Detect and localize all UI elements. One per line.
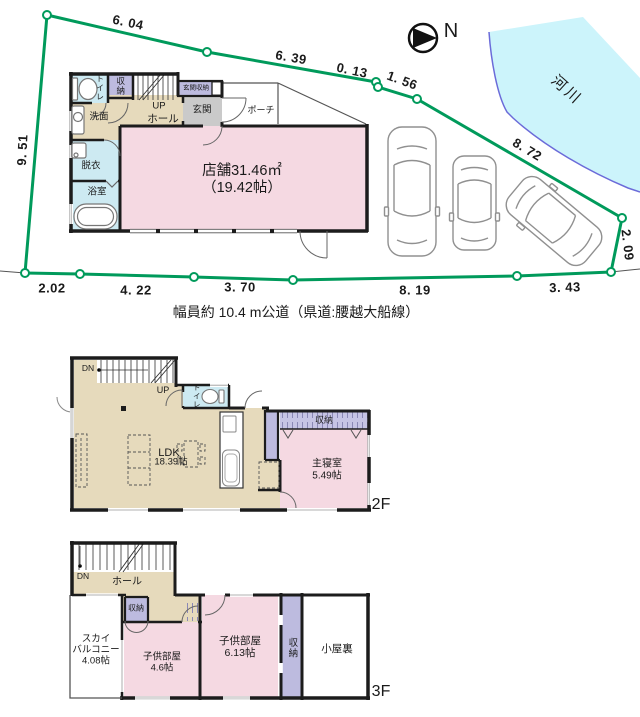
label-bedroom-size-2f: 5.49帖 <box>312 470 341 481</box>
measure-bottom-5: 3. 43 <box>549 280 581 296</box>
measure-bottom-3: 3. 70 <box>224 281 255 296</box>
label-kids2-3f: 子供部屋 <box>219 636 261 648</box>
road-edge-line <box>0 269 640 273</box>
label-washroom-1f: 洗面 <box>89 113 108 124</box>
floor-2-plan <box>57 357 371 512</box>
north-arrow-icon <box>409 24 437 52</box>
label-ldk-size-2f: 18.39帖 <box>154 458 187 469</box>
floor-label-2f: 2F <box>372 496 391 514</box>
label-balcony-size-3f: 4.08帖 <box>82 657 110 668</box>
label-dn-3f: DN <box>77 572 89 582</box>
label-up-1f: UP <box>152 102 165 113</box>
measure-bottom-1: 2.02 <box>38 282 65 297</box>
floor-label-3f: 3F <box>372 683 391 701</box>
label-shop-area: 店舗31.46㎡ <box>202 163 282 179</box>
label-hall-3f: ホール <box>112 576 142 587</box>
floor-3-plan <box>70 541 370 700</box>
car-2-icon <box>450 156 500 250</box>
label-toilet-2f: トイレ <box>192 383 200 409</box>
porch-outline <box>222 83 366 124</box>
label-entrance-1f: 玄関 <box>192 106 211 117</box>
floorplan-drawing <box>0 0 640 717</box>
measure-bottom-2: 4. 22 <box>120 284 151 299</box>
label-closet-tall-3f: 収納 <box>286 638 297 659</box>
label-up-2f: UP <box>157 385 170 395</box>
label-attic-3f: 小屋裏 <box>321 644 353 656</box>
label-porch-1f: ポーチ <box>247 105 274 115</box>
north-label: N <box>444 20 458 42</box>
label-entrance-closet-1f: 玄関収納 <box>183 84 209 91</box>
measure-bottom-4: 8. 19 <box>399 284 430 299</box>
label-hall-1f: ホール <box>147 114 179 126</box>
toilet-fixture-2f <box>202 390 224 404</box>
measure-east: 2. 09 <box>618 229 636 262</box>
label-kids2-size-3f: 6.13帖 <box>225 648 256 660</box>
label-shop-tatami: （19.42帖） <box>202 180 282 196</box>
label-bathroom-1f: 浴室 <box>87 188 106 199</box>
label-closet-2f: 収納 <box>315 415 333 425</box>
label-dn-2f: DN <box>82 364 94 374</box>
label-dressing-1f: 脱衣 <box>81 162 100 173</box>
label-bedroom-2f: 主寝室 <box>312 458 342 469</box>
label-kids1-size-3f: 4.6帖 <box>151 664 174 675</box>
label-closet-1f: 収納 <box>115 77 125 96</box>
kitchen-2f <box>220 412 243 488</box>
road-label: 幅員約 10.4 m公道（県道:腰越大船線） <box>173 305 420 321</box>
measure-west: 9. 51 <box>15 134 31 166</box>
label-closet-hall-3f: 収納 <box>128 605 144 614</box>
label-toilet-1f: トイレ <box>95 75 104 102</box>
car-1-icon <box>385 127 440 256</box>
floorplan-page: 6. 04 6. 39 0. 13 1. 56 8. 72 2. 09 9. 5… <box>0 0 640 717</box>
river-shape <box>489 17 640 192</box>
car-3-icon <box>498 168 610 274</box>
